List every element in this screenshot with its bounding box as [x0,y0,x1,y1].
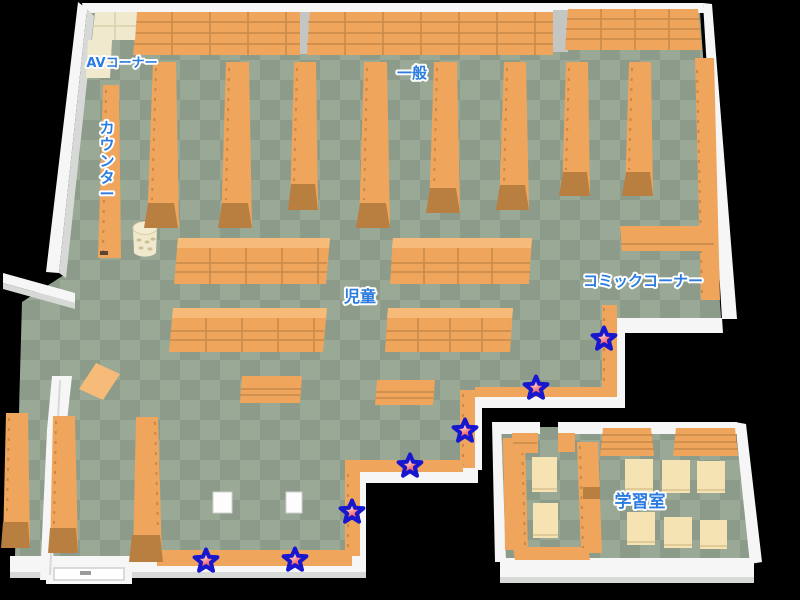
library-map-canvas: AVコーナー カウンター 一般 児童 コミックコーナー 学習室 [0,0,800,600]
study-desk [700,520,727,549]
label-study-room: 学習室 [615,491,666,512]
study-shelf-unit-2 [673,428,738,456]
wall-shelf-group-2 [307,12,553,55]
study-desk [697,461,725,493]
study-desk [533,503,558,538]
study-desk [625,459,653,492]
reading-bench-1 [240,376,302,403]
children-shelf-row2-left [169,308,327,352]
general-wall-shelves [133,9,702,55]
entrance-door [46,562,132,584]
book-cart-1 [213,492,232,513]
comic-south-wall [618,318,723,333]
children-shelf-row1-left [174,238,330,284]
book-cart-2 [286,492,302,513]
label-counter: カウンター [99,119,114,203]
label-general: 一般 [397,64,427,82]
label-comic-corner: コミックコーナー [583,272,703,290]
study-desk [662,460,690,493]
study-shelf-block-2 [558,433,575,452]
study-shelf-unit-1 [600,428,654,456]
label-av-corner: AVコーナー [86,56,157,71]
study-desk [532,457,557,492]
study-divider-shelf [577,442,602,553]
study-desk [627,512,655,545]
study-desk [664,517,692,548]
children-shelf-row2-right [385,308,513,352]
study-bottom-shelf [513,547,590,560]
children-shelf-row1-right [390,238,532,284]
library-map: AVコーナー カウンター 一般 児童 コミックコーナー 学習室 [0,0,800,600]
stair-strip-2 [475,387,617,397]
wall-shelf-group-3 [565,9,702,50]
wall-shelf-group-1 [133,12,300,55]
reading-bench-2 [375,380,435,405]
south-wall-strip [157,550,352,566]
label-children: 児童 [343,287,376,306]
comic-corner-shelf [620,226,715,251]
